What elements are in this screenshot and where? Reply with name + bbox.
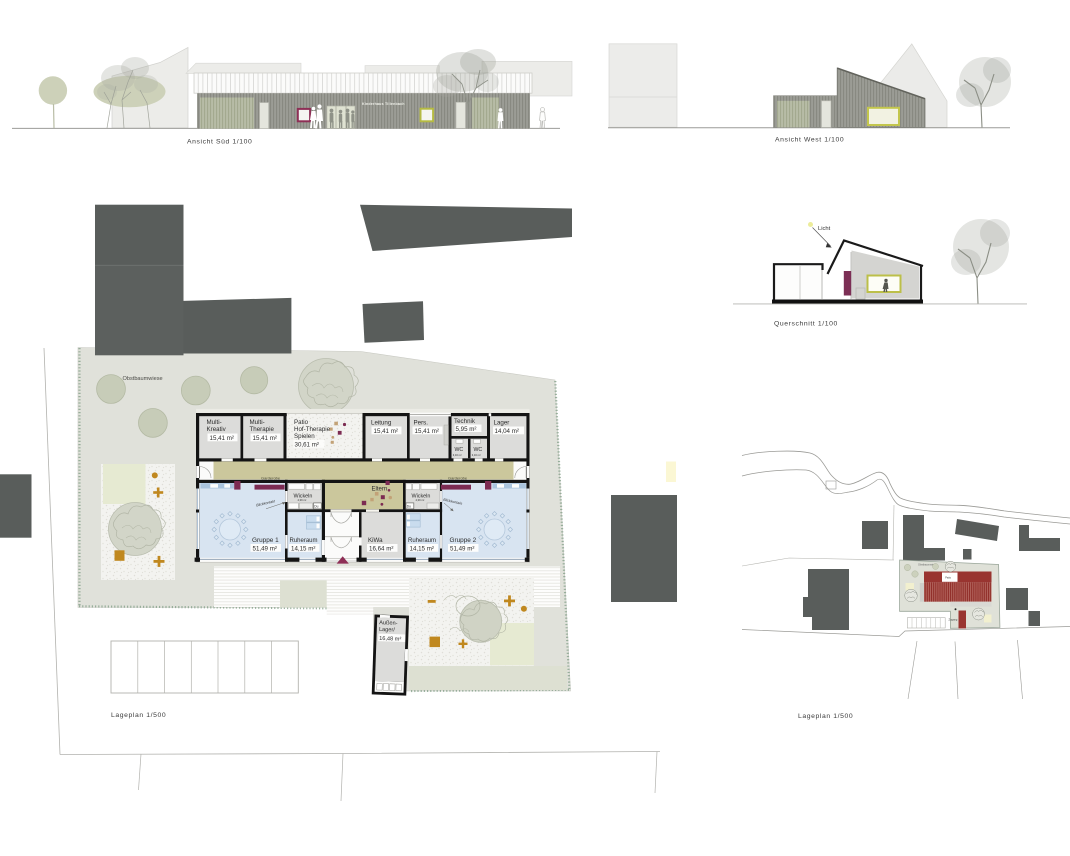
svg-text:14,15 m²: 14,15 m²	[291, 545, 315, 552]
svg-text:4,39 m²: 4,39 m²	[416, 498, 425, 502]
svg-text:Gruppe 1: Gruppe 1	[252, 537, 279, 544]
svg-text:Lager: Lager	[494, 420, 510, 427]
svg-text:5,95 m²: 5,95 m²	[456, 426, 477, 433]
svg-text:KiWa: KiWa	[368, 537, 383, 544]
svg-text:Lageplan 1/500: Lageplan 1/500	[798, 713, 853, 720]
svg-text:15,41 m²: 15,41 m²	[210, 435, 234, 442]
svg-text:4,39 m²: 4,39 m²	[298, 498, 307, 502]
svg-text:Spielen: Spielen	[294, 433, 315, 440]
svg-text:Kreativ: Kreativ	[207, 426, 227, 433]
svg-text:Pers.: Pers.	[414, 420, 429, 427]
svg-text:Lageplan 1/500: Lageplan 1/500	[111, 712, 166, 719]
svg-text:Ruheraum: Ruheraum	[408, 538, 436, 544]
svg-text:16,48 m²: 16,48 m²	[379, 636, 401, 643]
svg-text:Ruheraum: Ruheraum	[290, 538, 318, 544]
svg-text:Garderobe: Garderobe	[448, 475, 468, 480]
svg-text:15,41 m²: 15,41 m²	[253, 435, 277, 442]
svg-text:Ansicht Süd 1/100: Ansicht Süd 1/100	[187, 139, 252, 146]
svg-text:Multi-: Multi-	[250, 419, 265, 426]
svg-text:Ansicht West 1/100: Ansicht West 1/100	[775, 137, 844, 144]
svg-text:15,41 m²: 15,41 m²	[374, 428, 398, 435]
svg-text:Du: Du	[314, 505, 318, 509]
svg-text:Leitung: Leitung	[371, 420, 392, 427]
svg-text:Zugang: Zugang	[949, 618, 958, 622]
svg-text:Du: Du	[407, 505, 411, 509]
svg-text:51,49 m²: 51,49 m²	[253, 545, 277, 552]
svg-text:Obstbaumwiese: Obstbaumwiese	[123, 376, 163, 382]
svg-text:Technik: Technik	[454, 418, 476, 425]
svg-text:Hof-Therapie: Hof-Therapie	[294, 426, 331, 433]
svg-text:Querschnitt 1/100: Querschnitt 1/100	[774, 321, 838, 328]
svg-text:Multi-: Multi-	[207, 419, 222, 426]
svg-text:14,15 m²: 14,15 m²	[410, 545, 434, 552]
svg-text:Patio: Patio	[945, 576, 951, 580]
svg-text:51,49 m²: 51,49 m²	[450, 545, 474, 552]
svg-text:16,64 m²: 16,64 m²	[369, 545, 393, 552]
svg-text:Kinderhaus Tillenbach: Kinderhaus Tillenbach	[362, 102, 405, 106]
svg-text:Außen-: Außen-	[379, 620, 398, 627]
svg-text:WC: WC	[474, 447, 483, 453]
svg-text:3,16 m²: 3,16 m²	[472, 453, 481, 457]
svg-text:3,16 m²: 3,16 m²	[453, 453, 462, 457]
svg-text:Garderobe: Garderobe	[261, 475, 281, 480]
svg-text:Licht: Licht	[818, 226, 831, 232]
svg-text:Patio: Patio	[294, 419, 309, 426]
svg-text:Therapie: Therapie	[250, 426, 275, 433]
svg-text:Lager/: Lager/	[379, 627, 396, 634]
svg-text:Gruppe 2: Gruppe 2	[450, 537, 477, 544]
svg-text:14,04 m²: 14,04 m²	[495, 428, 519, 435]
svg-text:Eltern: Eltern	[372, 487, 388, 493]
svg-text:WC: WC	[455, 447, 464, 453]
svg-text:30,61 m²: 30,61 m²	[295, 441, 319, 448]
svg-text:15,41 m²: 15,41 m²	[415, 428, 439, 435]
